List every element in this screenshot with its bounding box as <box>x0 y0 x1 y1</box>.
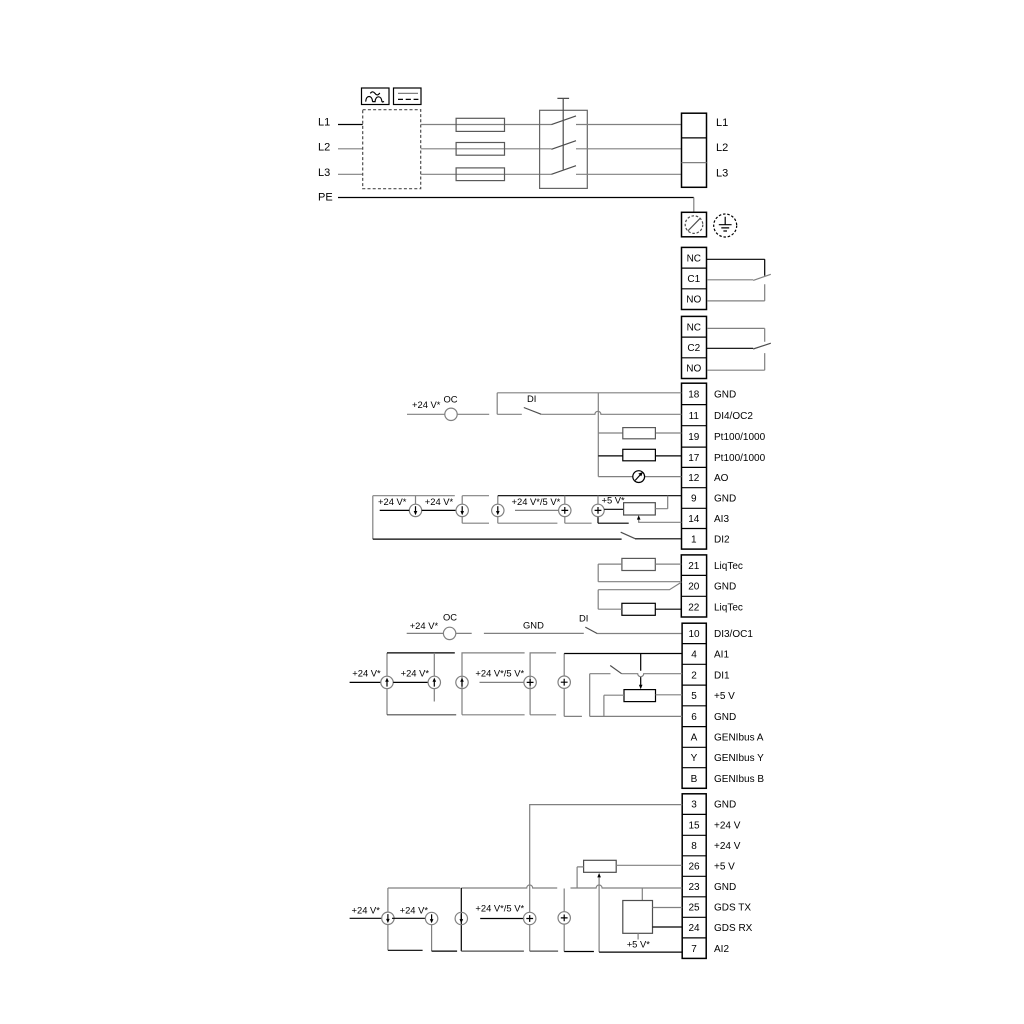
svg-text:DI1: DI1 <box>714 670 730 681</box>
svg-text:GND: GND <box>714 800 736 811</box>
svg-text:Pt100/1000: Pt100/1000 <box>714 453 766 464</box>
svg-text:GENIbus B: GENIbus B <box>714 774 764 785</box>
svg-text:B: B <box>691 774 698 785</box>
svg-text:DI: DI <box>527 393 536 404</box>
svg-text:DI2: DI2 <box>714 534 730 545</box>
svg-text:+24 V: +24 V <box>714 841 741 852</box>
svg-text:25: 25 <box>688 903 700 914</box>
svg-text:C2: C2 <box>687 343 700 354</box>
svg-text:3: 3 <box>691 800 697 811</box>
svg-text:+5 V*: +5 V* <box>627 938 651 949</box>
svg-text:+5 V*: +5 V* <box>602 494 626 505</box>
svg-text:14: 14 <box>688 514 700 525</box>
svg-text:18: 18 <box>688 390 700 401</box>
svg-text:24: 24 <box>688 923 700 934</box>
svg-text:7: 7 <box>691 944 697 955</box>
svg-text:8: 8 <box>691 841 697 852</box>
svg-text:+24 V*: +24 V* <box>400 905 429 916</box>
svg-text:A: A <box>691 733 698 744</box>
svg-text:+24 V*: +24 V* <box>378 496 407 507</box>
svg-text:L3: L3 <box>716 168 728 180</box>
svg-text:LiqTec: LiqTec <box>714 561 743 572</box>
svg-text:+24 V*: +24 V* <box>425 496 454 507</box>
svg-text:GDS TX: GDS TX <box>714 903 751 914</box>
svg-text:26: 26 <box>688 862 700 873</box>
svg-text:20: 20 <box>688 582 700 593</box>
svg-text:L1: L1 <box>318 117 330 129</box>
svg-text:11: 11 <box>689 411 700 422</box>
svg-text:+24 V*/5 V*: +24 V*/5 V* <box>512 496 561 507</box>
svg-text:GND: GND <box>523 620 544 631</box>
svg-text:+24 V*/5 V*: +24 V*/5 V* <box>475 667 524 678</box>
svg-text:GND: GND <box>714 882 736 893</box>
svg-text:GND: GND <box>714 494 736 505</box>
svg-text:GND: GND <box>714 390 736 401</box>
svg-text:NO: NO <box>686 364 701 375</box>
svg-text:NC: NC <box>687 253 701 264</box>
svg-text:GND: GND <box>714 582 736 593</box>
svg-text:12: 12 <box>688 473 700 484</box>
svg-text:AI2: AI2 <box>714 944 729 955</box>
svg-text:+24 V*/5 V*: +24 V*/5 V* <box>475 903 524 914</box>
svg-text:AI1: AI1 <box>714 650 729 661</box>
svg-text:9: 9 <box>691 494 697 505</box>
svg-text:+24 V*: +24 V* <box>410 620 439 631</box>
svg-text:17: 17 <box>688 453 700 464</box>
svg-text:10: 10 <box>688 629 700 640</box>
svg-text:6: 6 <box>691 712 697 723</box>
svg-text:L2: L2 <box>318 142 330 154</box>
svg-text:GDS RX: GDS RX <box>714 923 753 934</box>
svg-text:+24 V*: +24 V* <box>352 905 381 916</box>
svg-text:+24 V*: +24 V* <box>412 399 441 410</box>
svg-text:NO: NO <box>686 295 701 306</box>
svg-text:L1: L1 <box>716 117 728 129</box>
svg-text:AO: AO <box>714 473 729 484</box>
svg-text:L2: L2 <box>716 142 728 154</box>
svg-text:Y: Y <box>691 753 698 764</box>
svg-text:Pt100/1000: Pt100/1000 <box>714 432 766 443</box>
svg-text:19: 19 <box>688 432 700 443</box>
svg-text:DI: DI <box>579 612 588 623</box>
svg-text:+24 V: +24 V <box>714 821 741 832</box>
svg-text:23: 23 <box>688 882 700 893</box>
svg-text:+5 V: +5 V <box>714 862 735 873</box>
svg-text:OC: OC <box>444 394 458 405</box>
svg-text:L3: L3 <box>318 167 330 179</box>
svg-text:15: 15 <box>688 821 700 832</box>
svg-text:OC: OC <box>443 612 457 623</box>
svg-text:21: 21 <box>688 561 700 572</box>
svg-text:GND: GND <box>714 712 736 723</box>
svg-text:DI3/OC1: DI3/OC1 <box>714 629 753 640</box>
svg-text:NC: NC <box>687 322 701 333</box>
svg-text:5: 5 <box>691 691 697 702</box>
svg-text:22: 22 <box>688 602 700 613</box>
svg-text:PE: PE <box>318 192 333 204</box>
svg-text:LiqTec: LiqTec <box>714 602 743 613</box>
svg-text:+5 V: +5 V <box>714 691 735 702</box>
svg-text:1: 1 <box>691 534 697 545</box>
svg-text:4: 4 <box>691 650 697 661</box>
svg-text:C1: C1 <box>687 274 700 285</box>
svg-text:2: 2 <box>691 670 697 681</box>
svg-text:AI3: AI3 <box>714 514 729 525</box>
svg-text:GENIbus A: GENIbus A <box>714 733 764 744</box>
svg-text:DI4/OC2: DI4/OC2 <box>714 411 753 422</box>
svg-text:+24 V*: +24 V* <box>401 667 430 678</box>
svg-text:+24 V*: +24 V* <box>352 667 381 678</box>
svg-text:GENIbus Y: GENIbus Y <box>714 753 764 764</box>
